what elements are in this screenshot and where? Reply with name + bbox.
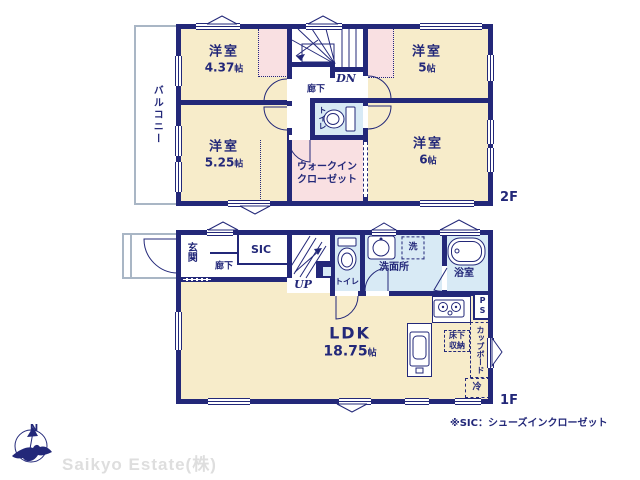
stairs-2f — [292, 29, 356, 67]
sic-note: ※SIC：シューズインクローゼット — [450, 414, 607, 429]
company-logo-text: Saikyo Estate(株) — [62, 450, 217, 475]
compass-icon: N — [12, 423, 52, 462]
stove-icon — [434, 300, 464, 317]
door-arc-icons — [144, 76, 447, 319]
bathtub-icon — [448, 238, 485, 265]
vent-triangle-icons — [207, 16, 502, 412]
plan-linework: N — [0, 0, 640, 480]
stairs-1f — [290, 236, 326, 278]
kitchen-sink-icon — [410, 332, 429, 373]
toilet-icon-1f — [338, 238, 356, 270]
compass-north-label: N — [30, 423, 38, 434]
washbasin-icon — [368, 236, 395, 259]
toilet-icon-2f — [324, 107, 355, 131]
